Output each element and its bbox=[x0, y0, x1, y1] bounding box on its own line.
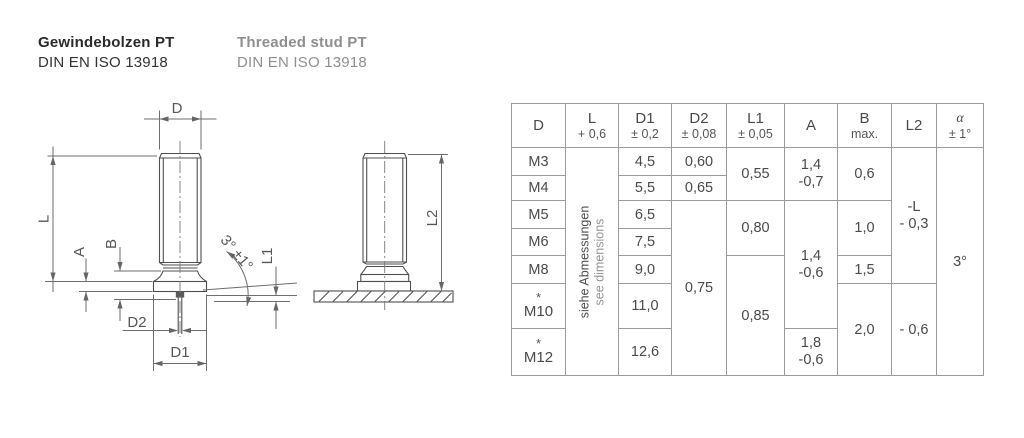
dim-label-angle: 3° ±1° bbox=[217, 232, 256, 274]
cell-l1-m8-m12: 0,85 bbox=[727, 256, 785, 376]
cell-d-m10: *M10 bbox=[512, 284, 566, 329]
dim-label-d2: D2 bbox=[127, 314, 146, 331]
dim-label-l1: L1 bbox=[259, 248, 276, 265]
dim-label-d1: D1 bbox=[170, 344, 189, 361]
header-b: Bmax. bbox=[838, 104, 892, 148]
dim-label-a: A bbox=[71, 247, 88, 257]
cell-d2-m4: 0,65 bbox=[672, 176, 727, 201]
dim-label-l2: L2 bbox=[424, 210, 441, 227]
technical-drawing: D L A B bbox=[0, 0, 470, 438]
cell-d-m5: M5 bbox=[512, 201, 566, 229]
stud-flange-2 bbox=[358, 282, 411, 292]
header-alpha: α± 1° bbox=[937, 104, 984, 148]
cell-d-m8: M8 bbox=[512, 256, 566, 284]
dimensions-table: D L+ 0,6 D1± 0,2 D2± 0,08 L1± 0,05 A Bma… bbox=[511, 103, 984, 376]
stud-side-view bbox=[154, 141, 207, 337]
cell-d2-m5-m12: 0,75 bbox=[672, 201, 727, 376]
cell-a-m5-m10: 1,4-0,6 bbox=[785, 201, 838, 329]
cell-d1-m4: 5,5 bbox=[619, 176, 672, 201]
note-english: see dimensions bbox=[592, 205, 607, 318]
cell-a-m3-m4: 1,4-0,7 bbox=[785, 148, 838, 201]
cell-l2-m10-m12: - 0,6 bbox=[892, 284, 937, 376]
cell-b-m8: 1,5 bbox=[838, 256, 892, 284]
cell-l1-m5-m6: 0,80 bbox=[727, 201, 785, 256]
cell-l2-m3-m8: -L- 0,3 bbox=[892, 148, 937, 284]
header-l1: L1± 0,05 bbox=[727, 104, 785, 148]
cell-d-m12: *M12 bbox=[512, 329, 566, 376]
header-row: D L+ 0,6 D1± 0,2 D2± 0,08 L1± 0,05 A Bma… bbox=[512, 104, 984, 148]
note-german: siehe Abmessungen bbox=[577, 205, 592, 318]
cell-b-m5-m6: 1,0 bbox=[838, 201, 892, 256]
cell-d1-m5: 6,5 bbox=[619, 201, 672, 229]
cell-d-m3: M3 bbox=[512, 148, 566, 176]
dim-label-l: L bbox=[36, 215, 53, 223]
cell-alpha-all: 3° bbox=[937, 148, 984, 376]
dim-label-b: B bbox=[103, 239, 120, 249]
header-d: D bbox=[512, 104, 566, 148]
cell-d1-m3: 4,5 bbox=[619, 148, 672, 176]
cell-b-m10-m12: 2,0 bbox=[838, 284, 892, 376]
header-l: L+ 0,6 bbox=[566, 104, 619, 148]
cell-d1-m12: 12,6 bbox=[619, 329, 672, 376]
cell-d1-m10: 11,0 bbox=[619, 284, 672, 329]
cell-l-note: siehe Abmessungen see dimensions bbox=[566, 148, 619, 376]
cell-d1-m8: 9,0 bbox=[619, 256, 672, 284]
cell-l1-m3-m4: 0,55 bbox=[727, 148, 785, 201]
header-d1: D1± 0,2 bbox=[619, 104, 672, 148]
stud-welded-view: L2 bbox=[314, 141, 453, 310]
header-d2: D2± 0,08 bbox=[672, 104, 727, 148]
cell-d2-m3: 0,60 bbox=[672, 148, 727, 176]
cell-d1-m6: 7,5 bbox=[619, 229, 672, 256]
cell-a-m12: 1,8-0,6 bbox=[785, 329, 838, 376]
header-a: A bbox=[785, 104, 838, 148]
cell-d-m4: M4 bbox=[512, 176, 566, 201]
cell-b-m3-m4: 0,6 bbox=[838, 148, 892, 201]
cell-d-m6: M6 bbox=[512, 229, 566, 256]
datasheet-page: Gewindebolzen PT DIN EN ISO 13918 Thread… bbox=[0, 0, 1024, 438]
dim-label-d: D bbox=[172, 100, 183, 117]
row-m3: M3 siehe Abmessungen see dimensions 4,5 … bbox=[512, 148, 984, 176]
header-l2: L2 bbox=[892, 104, 937, 148]
